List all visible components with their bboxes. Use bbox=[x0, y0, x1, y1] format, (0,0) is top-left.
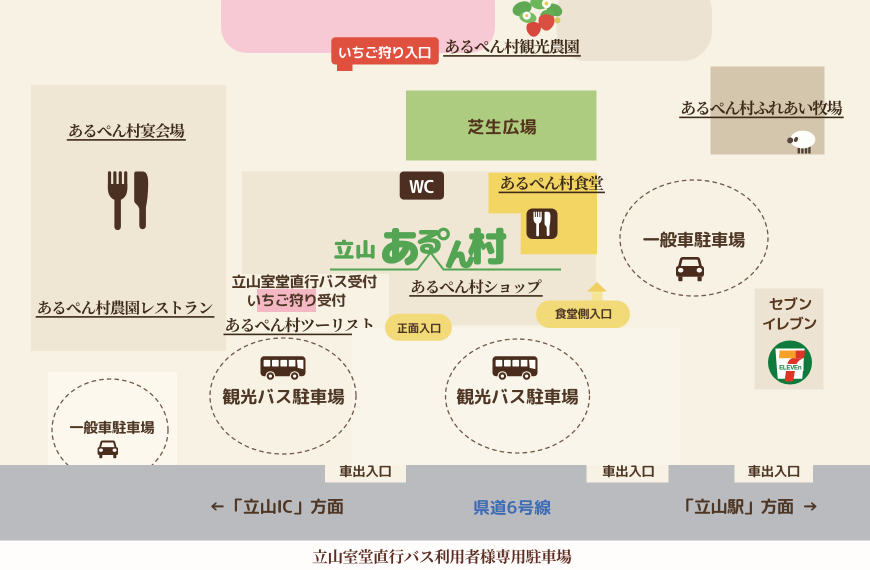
svg-text:ELEVEn: ELEVEn bbox=[779, 365, 802, 372]
